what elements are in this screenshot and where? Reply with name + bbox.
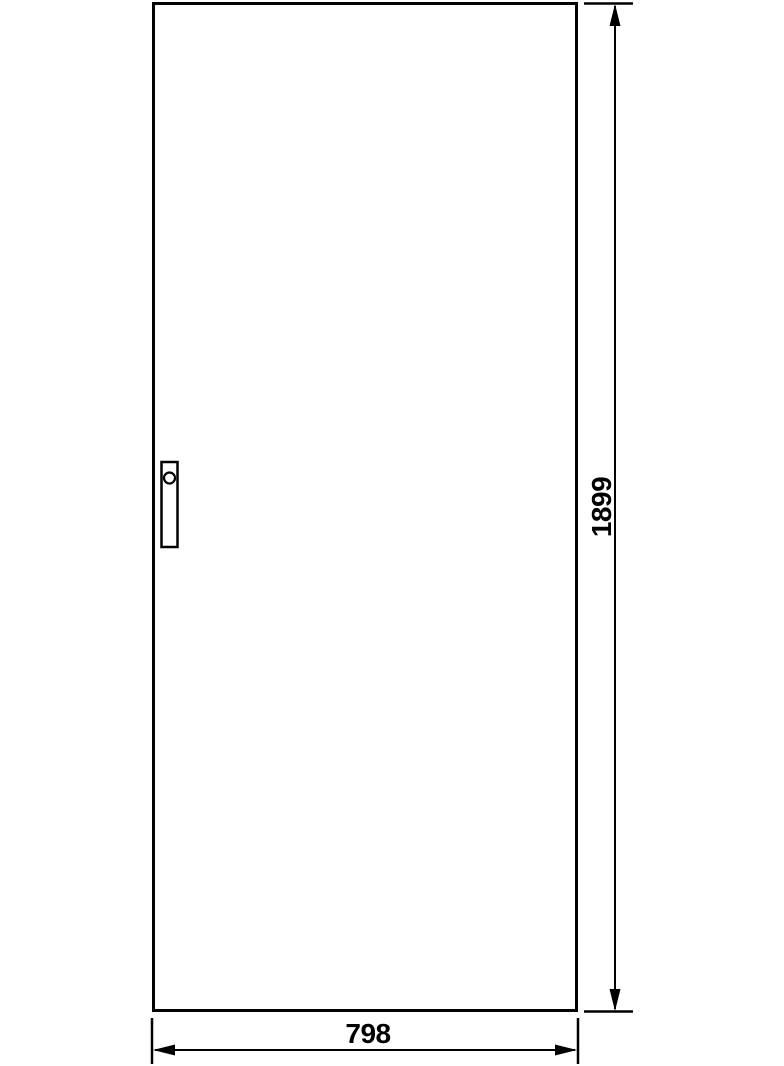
door-panel-outline xyxy=(154,4,577,1011)
door-technical-drawing: 1899 798 xyxy=(0,0,784,1066)
height-dimension-label: 1899 xyxy=(586,477,617,537)
arrowhead-left-icon xyxy=(153,1045,175,1056)
width-dimension-label: 798 xyxy=(345,1018,390,1049)
height-dimension: 1899 xyxy=(584,4,633,1012)
arrowhead-up-icon xyxy=(610,4,621,26)
arrowhead-right-icon xyxy=(555,1045,577,1056)
drawing-canvas: 1899 798 xyxy=(0,0,784,1066)
arrowhead-down-icon xyxy=(610,989,621,1011)
width-dimension: 798 xyxy=(152,1018,578,1064)
